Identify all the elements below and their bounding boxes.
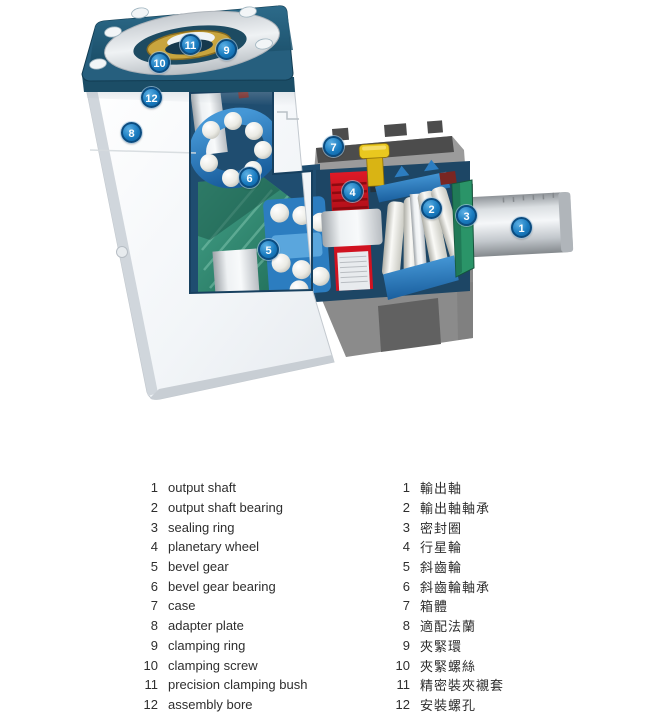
- legend-row: 10夾緊螺絲: [392, 655, 622, 675]
- legend-row: 1output shaft: [140, 478, 392, 498]
- legend-number: 8: [140, 618, 158, 633]
- gearbox-illustration: [0, 0, 650, 465]
- callout-7: 7: [323, 136, 344, 157]
- callout-10: 10: [149, 52, 170, 73]
- legend-number: 11: [392, 677, 410, 692]
- legend-row: 2輸出軸軸承: [392, 498, 622, 518]
- legend-number: 4: [392, 539, 410, 554]
- legend-label: adapter plate: [168, 618, 244, 633]
- legend-row: 6斜齒輪軸承: [392, 576, 622, 596]
- legend-row: 7箱體: [392, 596, 622, 616]
- legend-number: 6: [140, 579, 158, 594]
- callout-5: 5: [258, 239, 279, 260]
- legend-label: planetary wheel: [168, 539, 259, 554]
- legend-row: 9clamping ring: [140, 636, 392, 656]
- legend-label: 斜齒輪: [420, 557, 462, 576]
- legend-row: 11精密裝夾襯套: [392, 675, 622, 695]
- legend-row: 12安裝螺孔: [392, 695, 622, 715]
- legend-label: clamping ring: [168, 638, 245, 653]
- legend-row: 12assembly bore: [140, 695, 392, 715]
- legend-number: 11: [140, 677, 158, 692]
- callout-8: 8: [121, 122, 142, 143]
- legend-row: 1輸出軸: [392, 478, 622, 498]
- legend-label: 行星輪: [420, 537, 462, 556]
- legend-label: sealing ring: [168, 520, 235, 535]
- legend-label: output shaft: [168, 480, 236, 495]
- legend-number: 10: [392, 658, 410, 673]
- callout-2: 2: [421, 198, 442, 219]
- legend-row: 2output shaft bearing: [140, 498, 392, 518]
- legend-label: case: [168, 598, 195, 613]
- legend-label: 安裝螺孔: [420, 695, 476, 714]
- legend-number: 7: [392, 598, 410, 613]
- legend-label: bevel gear: [168, 559, 229, 574]
- legend-number: 2: [392, 500, 410, 515]
- callout-1: 1: [511, 217, 532, 238]
- legend-english: 1output shaft 2output shaft bearing 3sea…: [140, 478, 392, 714]
- legend-label: 夾緊螺絲: [420, 656, 476, 675]
- legend-row: 8adapter plate: [140, 616, 392, 636]
- legend-row: 4行星輪: [392, 537, 622, 557]
- legend-number: 5: [392, 559, 410, 574]
- legend-number: 7: [140, 598, 158, 613]
- legend-row: 9夾緊環: [392, 636, 622, 656]
- legend-label: precision clamping bush: [168, 677, 307, 692]
- legend-label: 密封圈: [420, 518, 462, 537]
- legend-number: 3: [140, 520, 158, 535]
- legend-row: 10clamping screw: [140, 655, 392, 675]
- legend-row: 6bevel gear bearing: [140, 576, 392, 596]
- housing-notch: [117, 247, 128, 258]
- legend-label: output shaft bearing: [168, 500, 283, 515]
- figure-canvas: 1 2 3 4 5 6 7 8 9 10 11 12 1output shaft…: [0, 0, 650, 727]
- legend-label: 適配法蘭: [420, 616, 476, 635]
- legend-chinese: 1輸出軸 2輸出軸軸承 3密封圈 4行星輪 5斜齒輪 6斜齒輪軸承 7箱體 8適…: [392, 478, 622, 714]
- legend-row: 8適配法蘭: [392, 616, 622, 636]
- legend-label: 斜齒輪軸承: [420, 577, 490, 596]
- legend-label: 輸出軸: [420, 478, 462, 497]
- legend-row: 4planetary wheel: [140, 537, 392, 557]
- legend-number: 10: [140, 658, 158, 673]
- legend-number: 12: [140, 697, 158, 712]
- legend-row: 3sealing ring: [140, 517, 392, 537]
- legend-row: 5bevel gear: [140, 557, 392, 577]
- legend-number: 1: [392, 480, 410, 495]
- legend: 1output shaft 2output shaft bearing 3sea…: [140, 478, 622, 714]
- bevel-gear-hub: [212, 249, 259, 298]
- legend-label: 箱體: [420, 596, 448, 615]
- legend-number: 9: [392, 638, 410, 653]
- legend-number: 4: [140, 539, 158, 554]
- legend-label: 夾緊環: [420, 636, 462, 655]
- callout-6: 6: [239, 167, 260, 188]
- callout-11: 11: [180, 34, 201, 55]
- legend-label: clamping screw: [168, 658, 258, 673]
- legend-row: 3密封圈: [392, 517, 622, 537]
- legend-row: 5斜齒輪: [392, 557, 622, 577]
- legend-number: 5: [140, 559, 158, 574]
- cutaway-internals: [186, 83, 474, 302]
- callout-12: 12: [141, 87, 162, 108]
- legend-number: 1: [140, 480, 158, 495]
- callout-4: 4: [342, 181, 363, 202]
- legend-label: assembly bore: [168, 697, 253, 712]
- legend-label: bevel gear bearing: [168, 579, 276, 594]
- legend-label: 精密裝夾襯套: [420, 675, 504, 694]
- legend-row: 7case: [140, 596, 392, 616]
- legend-number: 9: [140, 638, 158, 653]
- legend-number: 3: [392, 520, 410, 535]
- callout-9: 9: [216, 39, 237, 60]
- legend-row: 11precision clamping bush: [140, 675, 392, 695]
- legend-number: 6: [392, 579, 410, 594]
- legend-label: 輸出軸軸承: [420, 498, 490, 517]
- legend-number: 8: [392, 618, 410, 633]
- legend-number: 2: [140, 500, 158, 515]
- callout-3: 3: [456, 205, 477, 226]
- legend-number: 12: [392, 697, 410, 712]
